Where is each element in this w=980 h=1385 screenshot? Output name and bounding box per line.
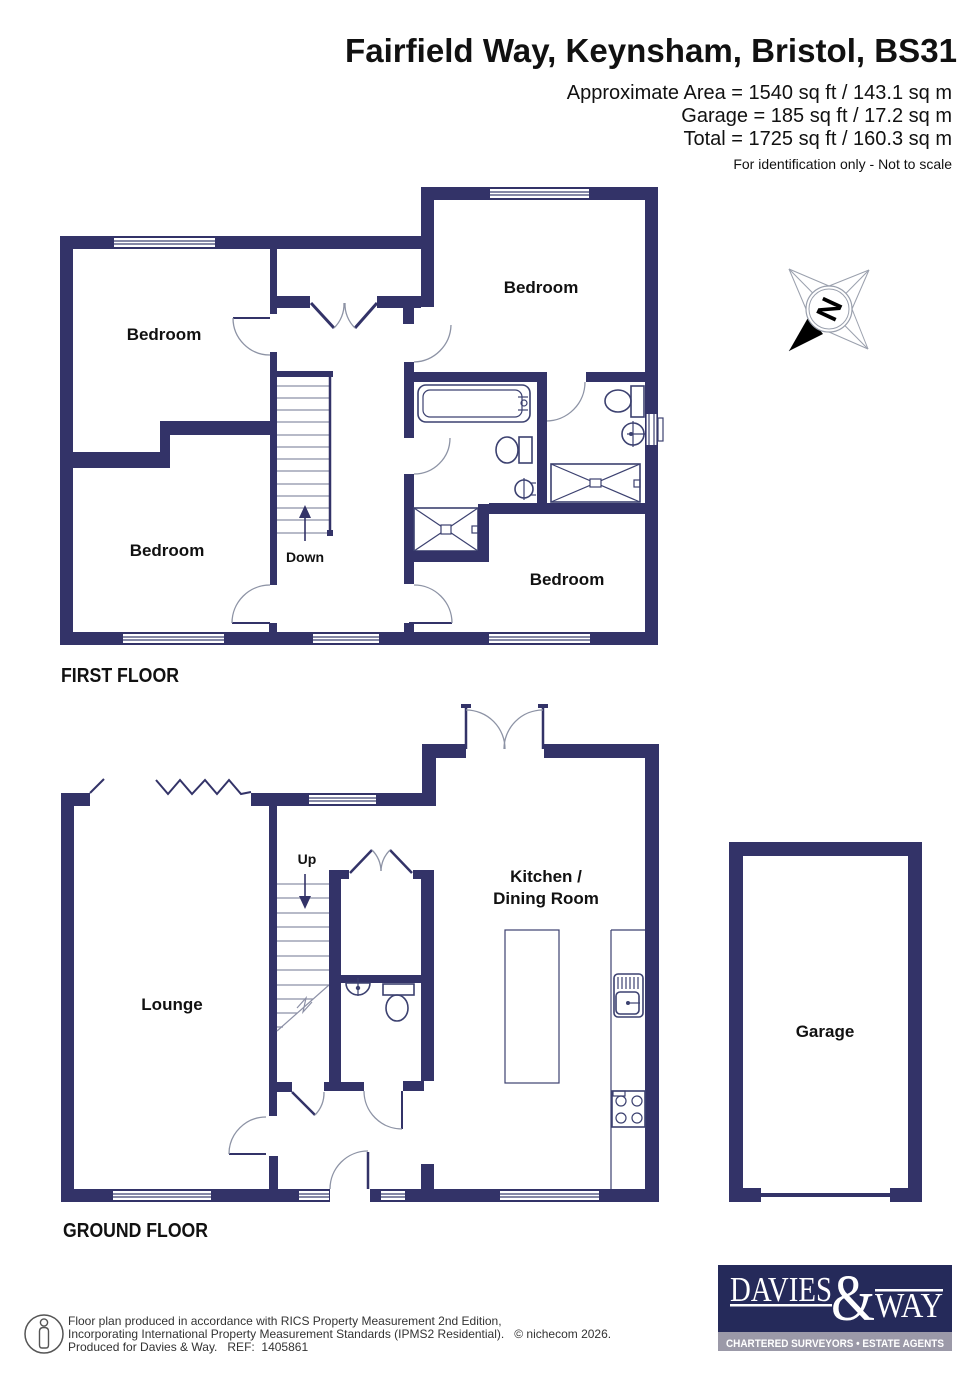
- svg-text:&: &: [831, 1262, 875, 1335]
- svg-text:Up: Up: [298, 851, 317, 867]
- svg-text:DAVIES: DAVIES: [730, 1270, 832, 1309]
- svg-text:Floor plan produced in accorda: Floor plan produced in accordance with R…: [68, 1314, 502, 1328]
- svg-text:GROUND FLOOR: GROUND FLOOR: [63, 1220, 208, 1242]
- svg-text:Down: Down: [286, 549, 324, 565]
- svg-text:WAY: WAY: [875, 1286, 943, 1325]
- svg-text:FIRST FLOOR: FIRST FLOOR: [61, 665, 179, 687]
- svg-text:Fairfield Way, Keynsham, Brist: Fairfield Way, Keynsham, Bristol, BS31: [345, 32, 957, 69]
- svg-text:Bedroom: Bedroom: [127, 325, 202, 344]
- svg-text:CHARTERED SURVEYORS • ESTATE A: CHARTERED SURVEYORS • ESTATE AGENTS: [726, 1338, 944, 1350]
- svg-text:Incorporating International Pr: Incorporating International Property Mea…: [68, 1327, 611, 1341]
- svg-text:Approximate Area = 1540 sq ft: Approximate Area = 1540 sq ft / 143.1 sq…: [567, 82, 952, 104]
- svg-text:Bedroom: Bedroom: [530, 570, 605, 589]
- svg-text:Garage: Garage: [796, 1022, 855, 1041]
- svg-text:Produced for Davies & Way. R: Produced for Davies & Way. REF: 1405861: [68, 1340, 308, 1354]
- svg-text:Lounge: Lounge: [141, 995, 202, 1014]
- svg-text:For identification only - Not: For identification only - Not to scale: [733, 156, 952, 172]
- svg-text:Bedroom: Bedroom: [504, 278, 579, 297]
- svg-text:Total = 1725 sq ft / 160.3 sq: Total = 1725 sq ft / 160.3 sq m: [684, 128, 953, 150]
- svg-text:Kitchen /: Kitchen /: [510, 867, 582, 886]
- svg-text:Garage = 185 sq ft / 17.2 sq m: Garage = 185 sq ft / 17.2 sq m: [681, 105, 952, 127]
- svg-text:Dining Room: Dining Room: [493, 889, 599, 908]
- svg-text:Bedroom: Bedroom: [130, 541, 205, 560]
